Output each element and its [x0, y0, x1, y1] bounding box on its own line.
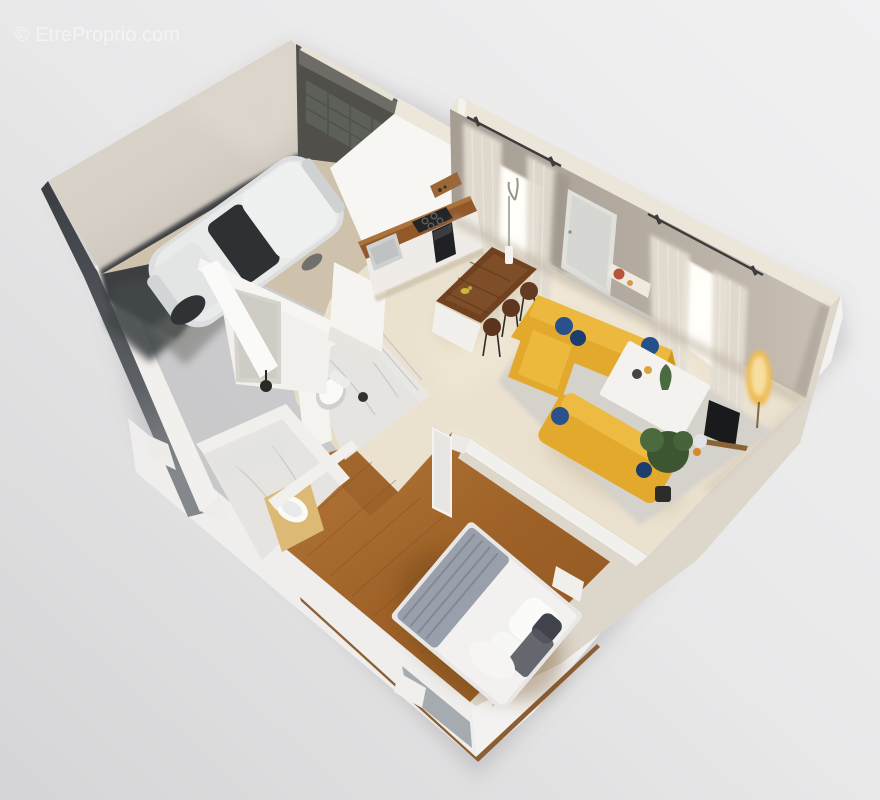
svg-text:© EtreProprio.com: © EtreProprio.com: [15, 24, 180, 46]
